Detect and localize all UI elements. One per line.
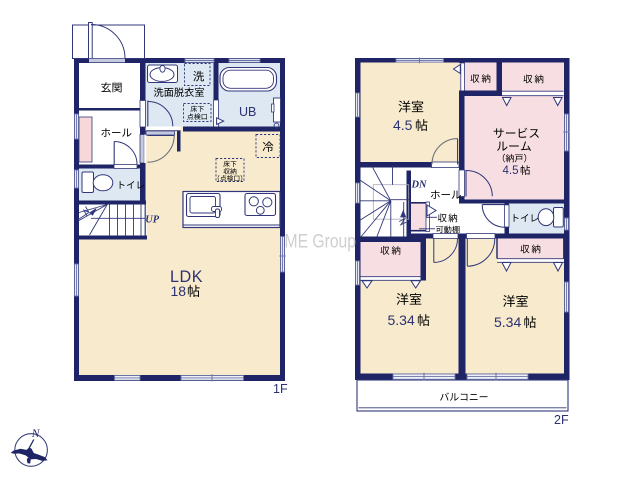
svg-text:UB: UB (239, 105, 256, 119)
svg-text:UP: UP (145, 215, 160, 226)
svg-text:N: N (31, 428, 41, 440)
svg-text:ME Group: ME Group (285, 231, 357, 253)
svg-text:4.5: 4.5 (393, 117, 413, 133)
svg-text:1F: 1F (273, 382, 288, 396)
svg-text:18: 18 (171, 283, 187, 299)
svg-text:4.5: 4.5 (503, 165, 519, 177)
svg-text:2F: 2F (554, 413, 569, 427)
svg-text:5.34: 5.34 (494, 314, 521, 330)
svg-text:DN: DN (411, 179, 428, 190)
svg-text:5.34: 5.34 (388, 312, 415, 328)
